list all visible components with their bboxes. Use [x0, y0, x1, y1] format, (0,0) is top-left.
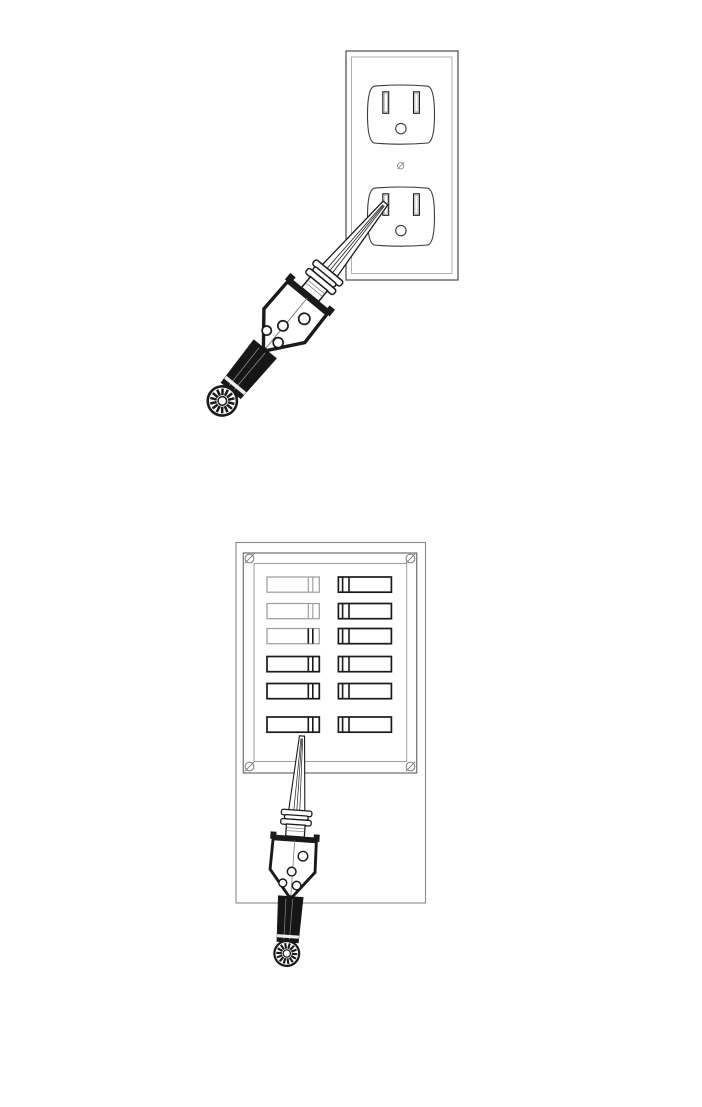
breaker-body	[338, 684, 391, 699]
breaker-body	[267, 717, 319, 732]
breaker-left-row-1	[267, 577, 319, 592]
breaker-body	[338, 629, 391, 644]
tester-probe-in-outlet	[191, 185, 408, 431]
figure-outlet-test	[191, 51, 458, 431]
faceplate-screw-top-right	[406, 554, 416, 564]
breaker-left-row-4	[267, 657, 319, 672]
breaker-right-row-5	[338, 684, 391, 699]
breaker-right-row-6	[338, 717, 391, 732]
breaker-right-row-1	[338, 577, 391, 592]
breaker-body	[267, 657, 319, 672]
breaker-body	[267, 604, 319, 619]
faceplate-screw-bottom-right	[406, 762, 416, 772]
breaker-right-row-2	[338, 604, 391, 619]
breaker-body	[338, 717, 391, 732]
breaker-left-row-2	[267, 604, 319, 619]
faceplate-screw-top-left	[245, 554, 255, 564]
breaker-body	[267, 684, 319, 699]
upper-receptacle	[368, 85, 435, 144]
breaker-left-row-3	[267, 629, 319, 644]
wallplate-center-screw	[397, 162, 404, 169]
breaker-left-row-5	[267, 684, 319, 699]
breaker-body	[338, 577, 391, 592]
breaker-right-row-4	[338, 657, 391, 672]
faceplate-screw-bottom-left	[245, 762, 255, 772]
breaker-body	[338, 604, 391, 619]
breaker-body	[267, 577, 319, 592]
drawing-sheet	[0, 0, 702, 1107]
breaker-left-row-6	[267, 717, 319, 732]
figure-breaker-panel-test	[236, 543, 426, 968]
breaker-body	[338, 657, 391, 672]
breaker-body	[267, 629, 319, 644]
patent-line-drawing	[0, 0, 702, 1107]
breaker-right-row-3	[338, 629, 391, 644]
